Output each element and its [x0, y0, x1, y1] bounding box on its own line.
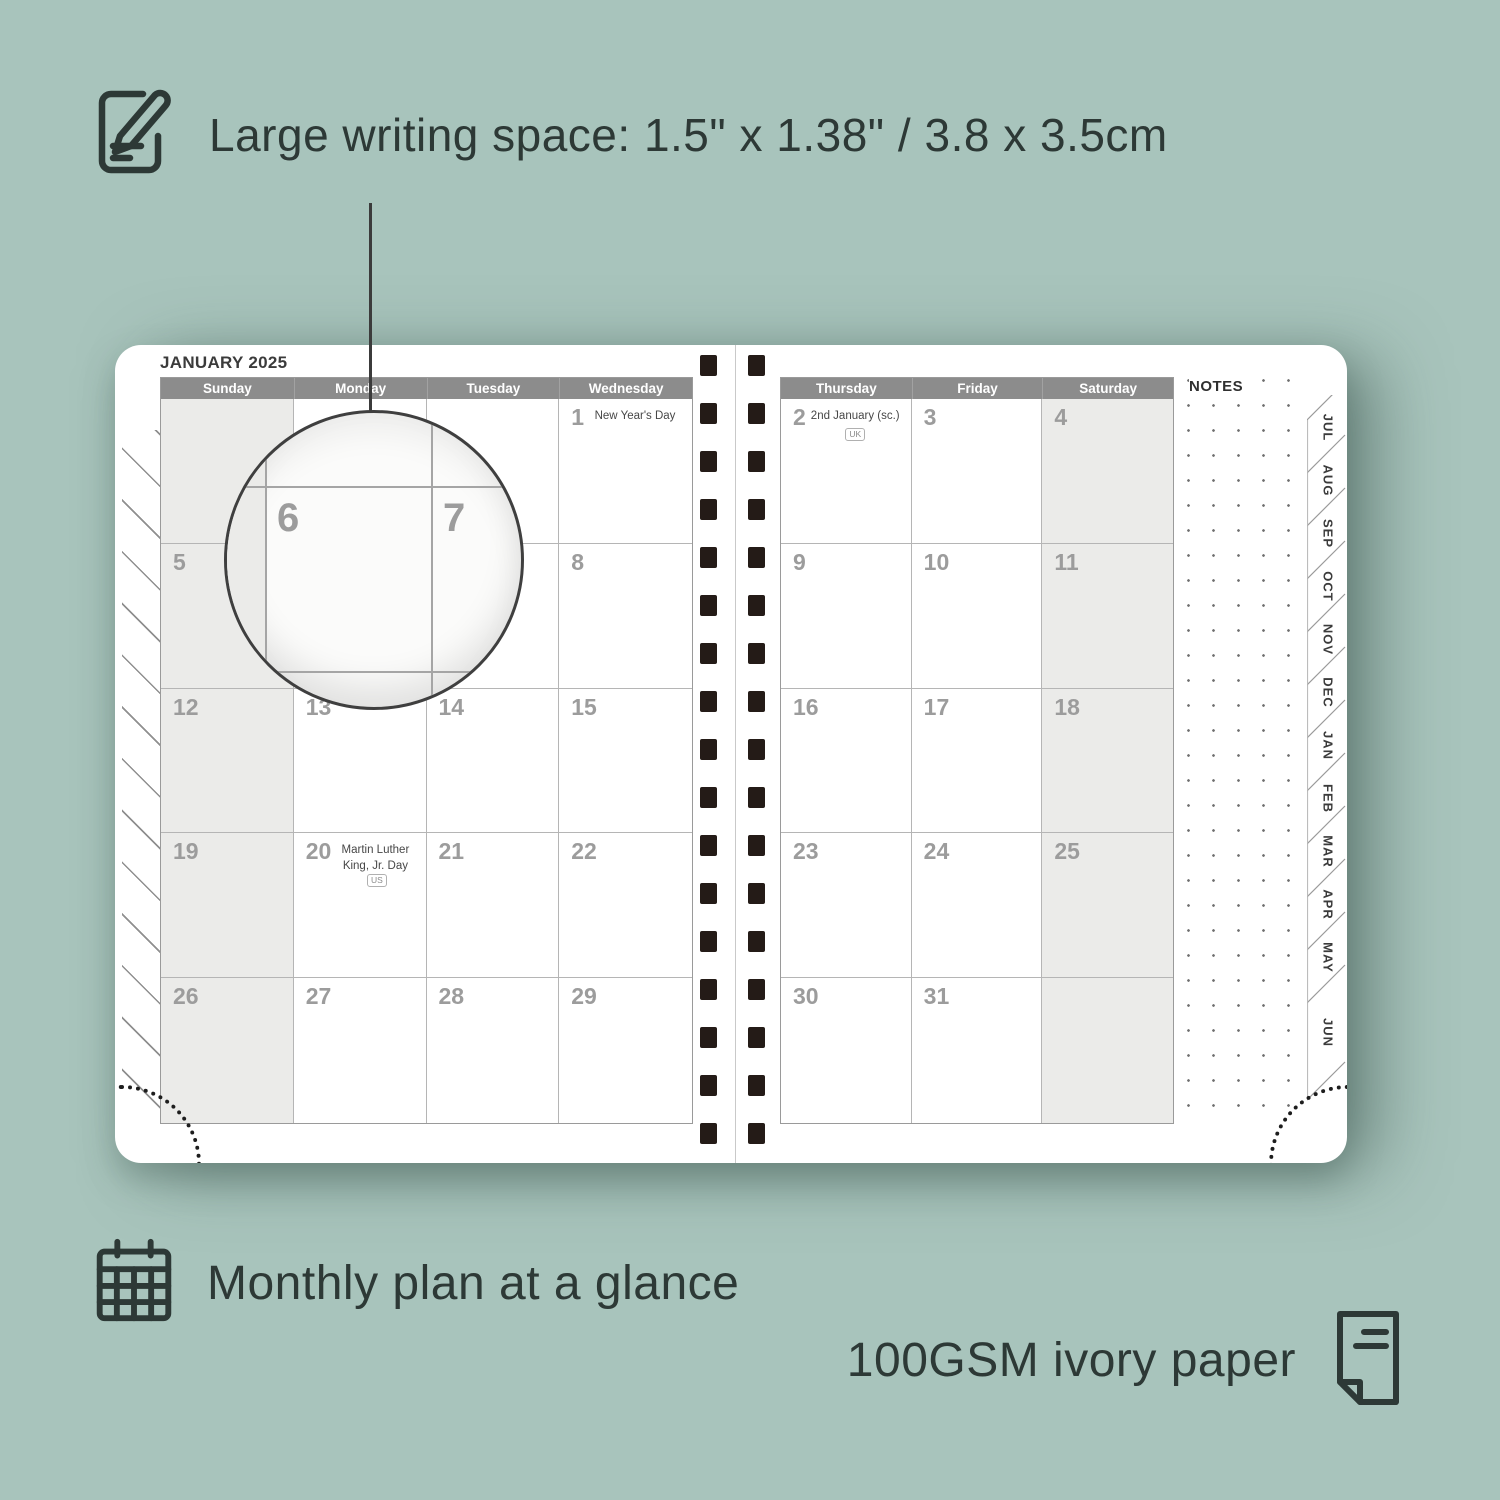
day-header: Tuesday: [427, 378, 560, 399]
spiral-hole: [748, 979, 765, 1000]
day-header: Wednesday: [559, 378, 692, 399]
date-number: 1: [571, 406, 584, 429]
country-badge: US: [367, 874, 387, 887]
date-number: 28: [439, 985, 465, 1008]
spiral-hole: [700, 403, 717, 424]
page-edge-hatching: [122, 430, 161, 1120]
calendar-cell: 16: [781, 689, 912, 834]
spiral-hole: [748, 691, 765, 712]
feature-writing-space: Large writing space: 1.5" x 1.38" / 3.8 …: [85, 80, 1168, 189]
spiral-hole: [700, 451, 717, 472]
calendar-cell: 25: [1042, 833, 1173, 978]
date-number: 25: [1054, 840, 1080, 863]
magnified-shaded-column: [227, 413, 265, 707]
calendar-cell: 28: [427, 978, 560, 1123]
calendar-cell: 9: [781, 544, 912, 689]
date-number: 15: [571, 696, 597, 719]
date-number: 4: [1054, 406, 1067, 429]
spiral-hole: [748, 643, 765, 664]
date-number: 9: [793, 551, 806, 574]
spiral-hole: [700, 355, 717, 376]
spiral-hole: [748, 1027, 765, 1048]
spiral-hole: [748, 1123, 765, 1144]
date-number: 12: [173, 696, 199, 719]
month-tab-mar: MAR: [1321, 835, 1336, 868]
day-header: Sunday: [161, 378, 294, 399]
notes-label: NOTES: [1189, 378, 1247, 395]
country-badge: UK: [845, 428, 865, 441]
spiral-hole: [748, 403, 765, 424]
magnified-grid-line: [265, 413, 267, 707]
calendar-cell: 14: [427, 689, 560, 834]
magnified-date-7: 7: [443, 498, 465, 538]
month-title: JANUARY 2025: [160, 353, 287, 373]
holiday-label: New Year's Day: [584, 406, 684, 425]
calendar-cell: 26: [161, 978, 294, 1123]
spiral-hole: [700, 643, 717, 664]
spiral-hole: [700, 1123, 717, 1144]
callout-pointer-line: [369, 203, 372, 412]
month-tab-apr: APR: [1321, 889, 1336, 919]
spiral-hole: [748, 595, 765, 616]
spiral-hole: [748, 739, 765, 760]
calendar-cell: 27: [294, 978, 427, 1123]
magnifier-circle: 6 7: [224, 410, 524, 710]
calendar-grid-icon: [85, 1232, 183, 1335]
calendar-cell: 4: [1042, 399, 1173, 544]
month-tab-aug: AUG: [1321, 465, 1336, 497]
date-number: 22: [571, 840, 597, 863]
calendar-cell: 22: [559, 833, 692, 978]
notes-dot-grid: NOTES: [1187, 377, 1309, 1122]
date-number: 18: [1054, 696, 1080, 719]
calendar-cell: 18: [1042, 689, 1173, 834]
day-header: Friday: [912, 378, 1043, 399]
page-divider: [735, 345, 736, 1163]
day-header: Monday: [294, 378, 427, 399]
month-tab-jun: JUN: [1321, 1018, 1336, 1047]
spiral-hole: [748, 1075, 765, 1096]
spiral-hole: [700, 931, 717, 952]
spiral-hole: [700, 1027, 717, 1048]
date-number: 24: [924, 840, 950, 863]
spiral-hole: [700, 979, 717, 1000]
spiral-hole: [700, 1075, 717, 1096]
feature-writing-space-label: Large writing space: 1.5" x 1.38" / 3.8 …: [209, 108, 1168, 162]
magnified-grid-line: [431, 413, 433, 707]
date-number: 17: [924, 696, 950, 719]
calendar-cell: 23: [781, 833, 912, 978]
feature-monthly-plan: Monthly plan at a glance: [85, 1232, 739, 1335]
calendar-cell: 15: [559, 689, 692, 834]
spiral-hole: [700, 787, 717, 808]
spiral-hole: [748, 451, 765, 472]
spiral-hole: [748, 787, 765, 808]
date-number: 8: [571, 551, 584, 574]
calendar-cell: 13: [294, 689, 427, 834]
calendar-cell: 1New Year's Day: [559, 399, 692, 544]
date-number: 29: [571, 985, 597, 1008]
month-tab-jul: JUL: [1321, 414, 1336, 442]
calendar-cell: 22nd January (sc.)UK: [781, 399, 912, 544]
spiral-hole: [700, 835, 717, 856]
feature-paper-label: 100GSM ivory paper: [847, 1333, 1296, 1388]
date-number: 20: [306, 840, 332, 863]
calendar-right-page: ThursdayFridaySaturday22nd January (sc.)…: [780, 377, 1174, 1124]
planner-notebook: JANUARY 2025 SundayMondayTuesdayWednesda…: [115, 345, 1347, 1163]
calendar-cell: 24: [912, 833, 1043, 978]
date-number: 31: [924, 985, 950, 1008]
calendar-cell: 30: [781, 978, 912, 1123]
calendar-cell: 10: [912, 544, 1043, 689]
date-number: 14: [439, 696, 465, 719]
spiral-hole: [700, 547, 717, 568]
date-number: 16: [793, 696, 819, 719]
calendar-cell: 31: [912, 978, 1043, 1123]
date-number: 10: [924, 551, 950, 574]
magnified-grid-line: [227, 671, 521, 673]
date-number: 27: [306, 985, 332, 1008]
paper-sheet-icon: [1320, 1306, 1410, 1415]
date-number: 21: [439, 840, 465, 863]
spiral-hole: [700, 739, 717, 760]
month-tab-nov: NOV: [1321, 624, 1336, 655]
date-number: 5: [173, 551, 186, 574]
spiral-hole: [700, 499, 717, 520]
calendar-cell: 3: [912, 399, 1043, 544]
spiral-hole: [748, 355, 765, 376]
month-tab-dec: DEC: [1321, 677, 1336, 707]
calendar-cell: 8: [559, 544, 692, 689]
date-number: 3: [924, 406, 937, 429]
calendar-cell: 12: [161, 689, 294, 834]
date-number: 2: [793, 406, 806, 429]
calendar-cell: 19: [161, 833, 294, 978]
date-number: 30: [793, 985, 819, 1008]
spiral-hole: [748, 883, 765, 904]
spiral-hole: [748, 931, 765, 952]
date-number: 23: [793, 840, 819, 863]
date-number: 11: [1054, 551, 1078, 574]
calendar-cell: [1042, 978, 1173, 1123]
day-header: Saturday: [1042, 378, 1173, 399]
spiral-hole: [748, 499, 765, 520]
calendar-cell: 29: [559, 978, 692, 1123]
magnified-date-6: 6: [277, 498, 299, 538]
notepad-pencil-icon: [85, 80, 185, 189]
spiral-hole: [700, 595, 717, 616]
calendar-cell: 21: [427, 833, 560, 978]
date-number: 26: [173, 985, 199, 1008]
product-image: Large writing space: 1.5" x 1.38" / 3.8 …: [0, 0, 1500, 1500]
spiral-hole: [748, 547, 765, 568]
feature-paper: 100GSM ivory paper: [847, 1306, 1410, 1415]
calendar-cell: 20Martin Luther King, Jr. DayUS: [294, 833, 427, 978]
month-tab-oct: OCT: [1321, 571, 1336, 601]
spiral-hole: [700, 883, 717, 904]
day-header: Thursday: [781, 378, 912, 399]
holiday-label: Martin Luther King, Jr. DayUS: [331, 840, 417, 890]
month-tab-sep: SEP: [1321, 519, 1336, 548]
month-tab-jan: JAN: [1321, 731, 1336, 760]
calendar-cell: 17: [912, 689, 1043, 834]
holiday-label: 2nd January (sc.)UK: [806, 406, 903, 441]
date-number: 19: [173, 840, 199, 863]
month-tab-may: MAY: [1321, 942, 1336, 973]
spiral-hole: [748, 835, 765, 856]
spiral-hole: [700, 691, 717, 712]
month-tab-feb: FEB: [1321, 784, 1336, 813]
month-tabs: JULAUGSEPOCTNOVDECJANFEBMARAPRMAYJUN: [1307, 395, 1347, 1115]
calendar-cell: 11: [1042, 544, 1173, 689]
magnified-grid-line: [227, 486, 521, 488]
feature-monthly-plan-label: Monthly plan at a glance: [207, 1256, 739, 1311]
